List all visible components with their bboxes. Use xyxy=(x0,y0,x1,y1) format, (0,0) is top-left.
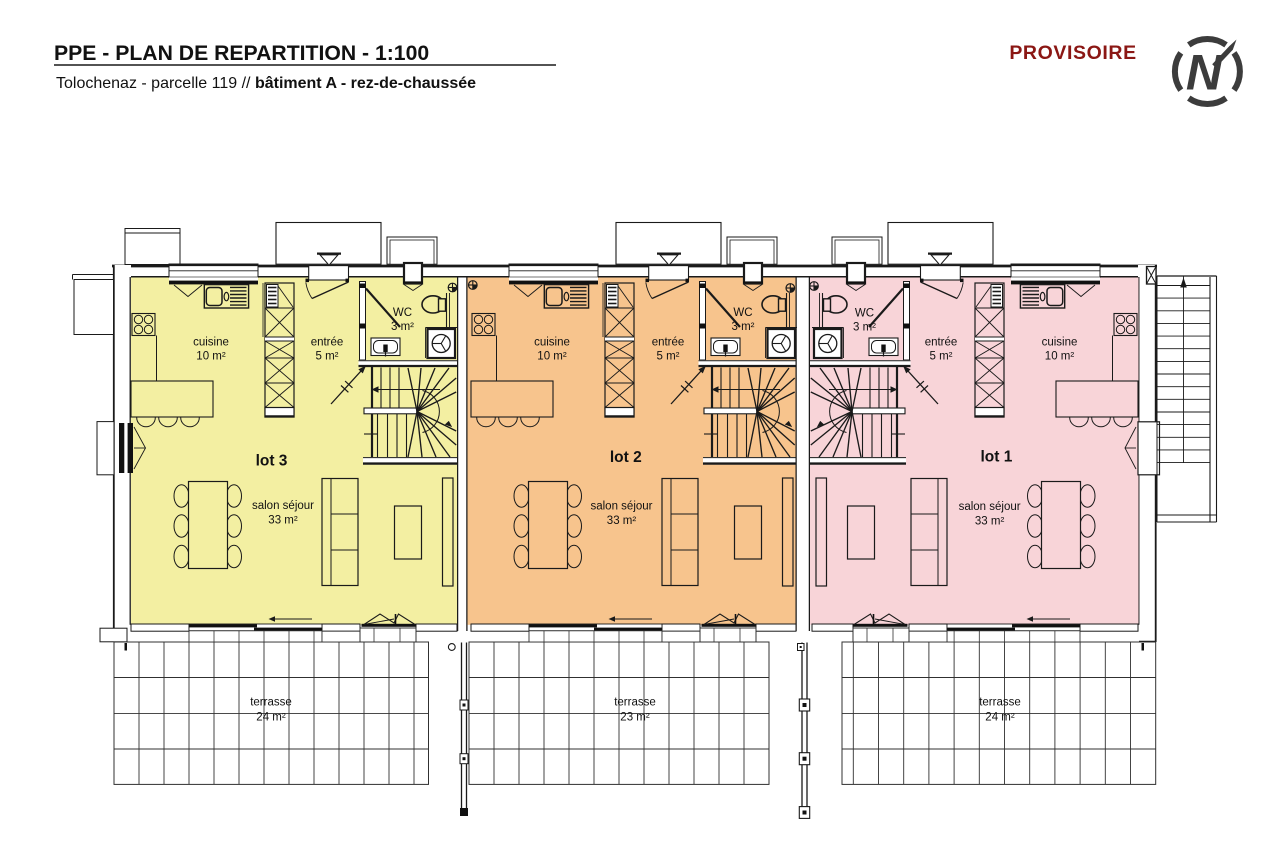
svg-text:cuisine: cuisine xyxy=(193,337,229,349)
svg-text:5 m²: 5 m² xyxy=(657,351,680,363)
svg-text:lot 3: lot 3 xyxy=(256,453,288,470)
svg-text:3 m²: 3 m² xyxy=(391,321,414,333)
svg-text:10 m²: 10 m² xyxy=(196,351,226,363)
svg-text:3 m²: 3 m² xyxy=(732,321,755,333)
svg-text:5 m²: 5 m² xyxy=(930,351,953,363)
svg-text:WC: WC xyxy=(393,307,412,319)
svg-text:PROVISOIRE: PROVISOIRE xyxy=(1009,42,1136,64)
svg-text:10 m²: 10 m² xyxy=(1045,351,1075,363)
svg-text:33 m²: 33 m² xyxy=(607,515,637,527)
svg-text:5 m²: 5 m² xyxy=(316,351,339,363)
svg-text:PPE - PLAN DE REPARTITION - 1:: PPE - PLAN DE REPARTITION - 1:100 xyxy=(54,42,429,65)
svg-text:terrasse: terrasse xyxy=(250,697,292,709)
svg-text:24 m²: 24 m² xyxy=(256,712,286,724)
svg-text:entrée: entrée xyxy=(311,337,344,349)
svg-text:terrasse: terrasse xyxy=(979,697,1021,709)
svg-text:lot 2: lot 2 xyxy=(610,449,642,466)
svg-text:cuisine: cuisine xyxy=(534,337,570,349)
svg-text:WC: WC xyxy=(733,307,752,319)
svg-text:N: N xyxy=(1186,45,1223,101)
svg-text:entrée: entrée xyxy=(652,337,685,349)
svg-text:salon séjour: salon séjour xyxy=(959,501,1021,513)
svg-text:lot 1: lot 1 xyxy=(980,449,1012,466)
svg-text:cuisine: cuisine xyxy=(1042,337,1078,349)
svg-text:33 m²: 33 m² xyxy=(975,516,1005,528)
svg-text:3 m²: 3 m² xyxy=(853,322,876,334)
svg-text:23 m²: 23 m² xyxy=(620,712,650,724)
svg-text:entrée: entrée xyxy=(925,337,958,349)
svg-text:33 m²: 33 m² xyxy=(268,515,298,527)
svg-text:terrasse: terrasse xyxy=(614,697,656,709)
svg-text:WC: WC xyxy=(855,308,874,320)
svg-text:salon séjour: salon séjour xyxy=(252,500,314,512)
svg-text:Tolochenaz - parcelle 119 // b: Tolochenaz - parcelle 119 // bâtiment A … xyxy=(56,75,476,92)
svg-text:24 m²: 24 m² xyxy=(985,712,1015,724)
svg-text:salon séjour: salon séjour xyxy=(590,501,652,513)
svg-text:10 m²: 10 m² xyxy=(537,351,567,363)
